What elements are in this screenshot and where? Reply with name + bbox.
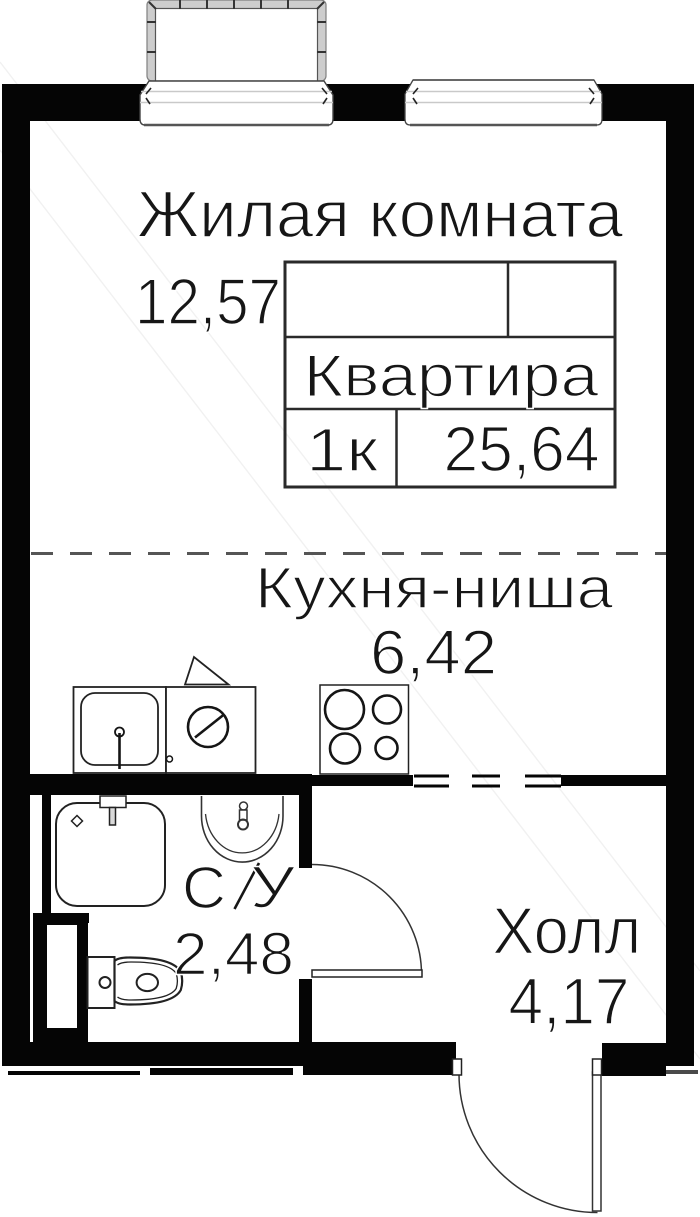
svg-text:Холл: Холл — [492, 894, 641, 968]
svg-text:1к: 1к — [306, 416, 378, 484]
svg-text:Кухня-ниша: Кухня-ниша — [255, 556, 614, 621]
svg-text:4,17: 4,17 — [509, 964, 630, 1038]
svg-text:С: С — [182, 855, 226, 921]
svg-text:12,57: 12,57 — [135, 265, 281, 338]
svg-text:6,42: 6,42 — [370, 618, 497, 688]
svg-text:Квартира: Квартира — [304, 343, 599, 409]
svg-text:2,48: 2,48 — [173, 921, 294, 988]
svg-text:Жилая комната: Жилая комната — [137, 177, 623, 251]
svg-text:У: У — [250, 855, 296, 921]
svg-text:25,64: 25,64 — [444, 413, 600, 485]
